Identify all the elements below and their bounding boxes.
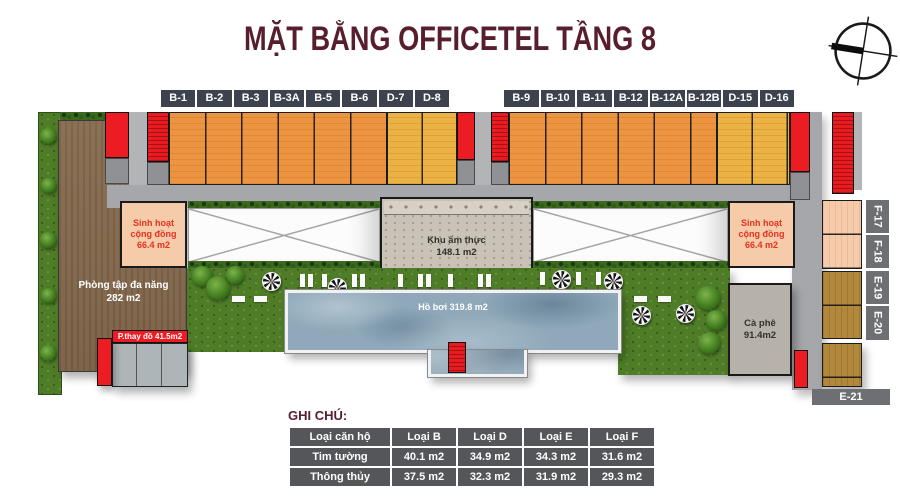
- stair-core: [491, 112, 509, 162]
- legend-cell: 34.9 m2: [458, 448, 522, 466]
- tree-icon: [40, 128, 56, 144]
- legend-col-header: Loại B: [392, 428, 456, 446]
- legend-row: Tim tường 40.1 m2 34.9 m2 34.3 m2 31.6 m…: [290, 448, 654, 466]
- legend-row-label: Tim tường: [290, 448, 390, 466]
- unit-label-e21: E-21: [812, 389, 890, 405]
- lobby-corridor: [129, 112, 147, 185]
- elevator-core: [457, 112, 475, 160]
- room-area: 66.4 m2: [739, 240, 785, 251]
- unit-labels-top-left: B-1 B-2 B-3 B-3A B-5 B-6 D-7 D-8: [161, 90, 449, 107]
- swimming-pool-lobe: [428, 350, 527, 377]
- units-d7-d8: [387, 112, 457, 185]
- tree-icon: [706, 310, 726, 330]
- unit-label-b11: B-11: [577, 90, 612, 107]
- tree-icon: [226, 266, 244, 284]
- community-room-left: Sinh hoạt cộng đồng 66.4 m2: [120, 201, 187, 268]
- tree-icon: [41, 288, 56, 303]
- pool-stair: [448, 342, 466, 373]
- legend-cell: 34.3 m2: [524, 448, 588, 466]
- compass-icon: [826, 14, 900, 88]
- room-label: Sinh hoạt: [131, 218, 177, 229]
- units-d15-d16: [717, 112, 790, 185]
- unit-label-d15: D-15: [723, 90, 758, 107]
- room-area: 282 m2: [62, 293, 185, 306]
- room-label: Cà phê: [744, 318, 776, 330]
- stair-core: [790, 112, 810, 172]
- unit-labels-top-right: B-9 B-10 B-11 B-12 B-12A B-12B D-15 D-16: [504, 90, 794, 107]
- legend-cell: 32.3 m2: [458, 468, 522, 486]
- lounge-chair: [596, 272, 601, 285]
- unit-label-b12b: B-12B: [687, 90, 722, 107]
- lounge-chair: [540, 272, 545, 285]
- unit-label-d8: D-8: [415, 90, 449, 107]
- hedge-strip: [188, 201, 380, 208]
- legend-cell: 37.5 m2: [392, 468, 456, 486]
- unit-label-f17: F-17: [866, 200, 889, 233]
- service-block: [854, 112, 862, 190]
- lounge-chair: [448, 274, 453, 287]
- lounge-chair: [308, 274, 313, 287]
- cafe-room: Cà phê 91.4m2: [728, 283, 792, 376]
- units-f17-f18: [822, 200, 862, 269]
- stair-core: [832, 112, 854, 194]
- unit-label-b6: B-6: [342, 90, 376, 107]
- lounge-chair: [254, 296, 267, 302]
- unit-label-e20: E-20: [866, 306, 889, 340]
- legend-col-header: Loại E: [524, 428, 588, 446]
- service-block: [147, 162, 169, 185]
- room-label: Khu ẩm thực: [427, 235, 486, 247]
- hedge-strip: [533, 201, 728, 208]
- tree-icon: [40, 345, 56, 361]
- service-block: [790, 172, 810, 200]
- room-area: 91.4m2: [744, 330, 776, 342]
- tree-icon: [698, 332, 720, 354]
- unit-label-d7: D-7: [379, 90, 413, 107]
- changing-room-banner: P.thay đồ 41.5m2: [112, 330, 188, 343]
- service-block: [457, 160, 475, 185]
- lounge-chair: [658, 296, 671, 302]
- unit-label-b12a: B-12A: [650, 90, 685, 107]
- stair-core: [147, 112, 169, 162]
- unit-label-f18: F-18: [866, 235, 889, 268]
- legend-cell: 40.1 m2: [392, 448, 456, 466]
- umbrella-icon: [676, 304, 695, 323]
- legend-header-row: Loại căn hộ Loại B Loại D Loại E Loại F: [290, 428, 654, 446]
- community-room-right: Sinh hoạt cộng đồng 66.4 m2: [728, 201, 795, 268]
- units-b9-b12b: [509, 112, 717, 185]
- stair-core: [105, 112, 129, 158]
- room-label: Sinh hoạt: [739, 218, 785, 229]
- unit-label-b3a: B-3A: [270, 90, 304, 107]
- gym-label: Phòng tập đa năng 282 m2: [62, 280, 185, 305]
- unit-label-b10: B-10: [541, 90, 576, 107]
- legend-table: Loại căn hộ Loại B Loại D Loại E Loại F …: [288, 426, 656, 488]
- lounge-chair: [352, 274, 357, 287]
- unit-label-b12: B-12: [614, 90, 649, 107]
- lounge-chair: [398, 274, 403, 287]
- legend-col-header: Loại căn hộ: [290, 428, 390, 446]
- umbrella-icon: [262, 272, 281, 291]
- lounge-chair: [576, 272, 581, 285]
- skylight-void-right: [533, 208, 728, 263]
- service-block: [105, 158, 129, 184]
- lounge-chair: [634, 296, 647, 302]
- food-court-room: Khu ẩm thực 148.1 m2: [380, 197, 533, 270]
- units-b1-b6: [169, 112, 387, 185]
- unit-label-b1: B-1: [161, 90, 195, 107]
- room-label: Phòng tập đa năng: [62, 280, 185, 293]
- lobby-corridor: [475, 112, 491, 185]
- pool-label: Hồ bơi 319.8 m2: [285, 302, 621, 313]
- tree-icon: [40, 232, 56, 248]
- unit-label-b2: B-2: [197, 90, 231, 107]
- room-label: cộng đồng: [131, 229, 177, 240]
- tree-icon: [696, 286, 720, 310]
- legend-cell: 29.3 m2: [590, 468, 654, 486]
- room-area: 66.4 m2: [131, 240, 177, 251]
- legend-row-label: Thông thủy: [290, 468, 390, 486]
- units-e19-e20: [822, 271, 862, 339]
- legend-col-header: Loại D: [458, 428, 522, 446]
- lounge-chair: [486, 274, 491, 287]
- lounge-chair: [322, 274, 327, 287]
- lounge-chair: [360, 274, 365, 287]
- lounge-chair: [300, 274, 305, 287]
- service-block: [491, 162, 509, 185]
- umbrella-icon: [632, 306, 651, 325]
- tree-icon: [41, 178, 56, 193]
- unit-e21: [822, 343, 862, 387]
- officetel-floorplan-page: MẶT BẰNG OFFICETEL TẦNG 8 B-1 B-2 B-3 B-…: [0, 0, 900, 500]
- unit-label-d16: D-16: [760, 90, 795, 107]
- legend-heading: GHI CHÚ:: [288, 408, 347, 423]
- legend-row: Thông thủy 37.5 m2 32.3 m2 31.9 m2 29.3 …: [290, 468, 654, 486]
- room-area: 148.1 m2: [427, 247, 486, 259]
- room-label: cộng đồng: [739, 229, 785, 240]
- page-title: MẶT BẰNG OFFICETEL TẦNG 8: [90, 20, 810, 59]
- skylight-void-left: [188, 208, 380, 263]
- umbrella-icon: [604, 272, 623, 291]
- hedge-strip: [60, 112, 105, 120]
- legend-cell: 31.9 m2: [524, 468, 588, 486]
- food-court-terrace: [384, 201, 529, 215]
- umbrella-icon: [552, 270, 571, 289]
- lounge-chair: [478, 274, 483, 287]
- unit-label-b9: B-9: [504, 90, 539, 107]
- unit-label-b3: B-3: [234, 90, 268, 107]
- unit-label-e19: E-19: [866, 271, 889, 304]
- lounge-chair: [232, 296, 245, 302]
- unit-label-b5: B-5: [306, 90, 340, 107]
- lounge-chair: [418, 274, 423, 287]
- stair-core: [97, 338, 112, 386]
- legend-col-header: Loại F: [590, 428, 654, 446]
- lounge-chair: [426, 274, 431, 287]
- changing-room: [112, 343, 188, 387]
- legend-cell: 31.6 m2: [590, 448, 654, 466]
- stair-core: [794, 350, 808, 388]
